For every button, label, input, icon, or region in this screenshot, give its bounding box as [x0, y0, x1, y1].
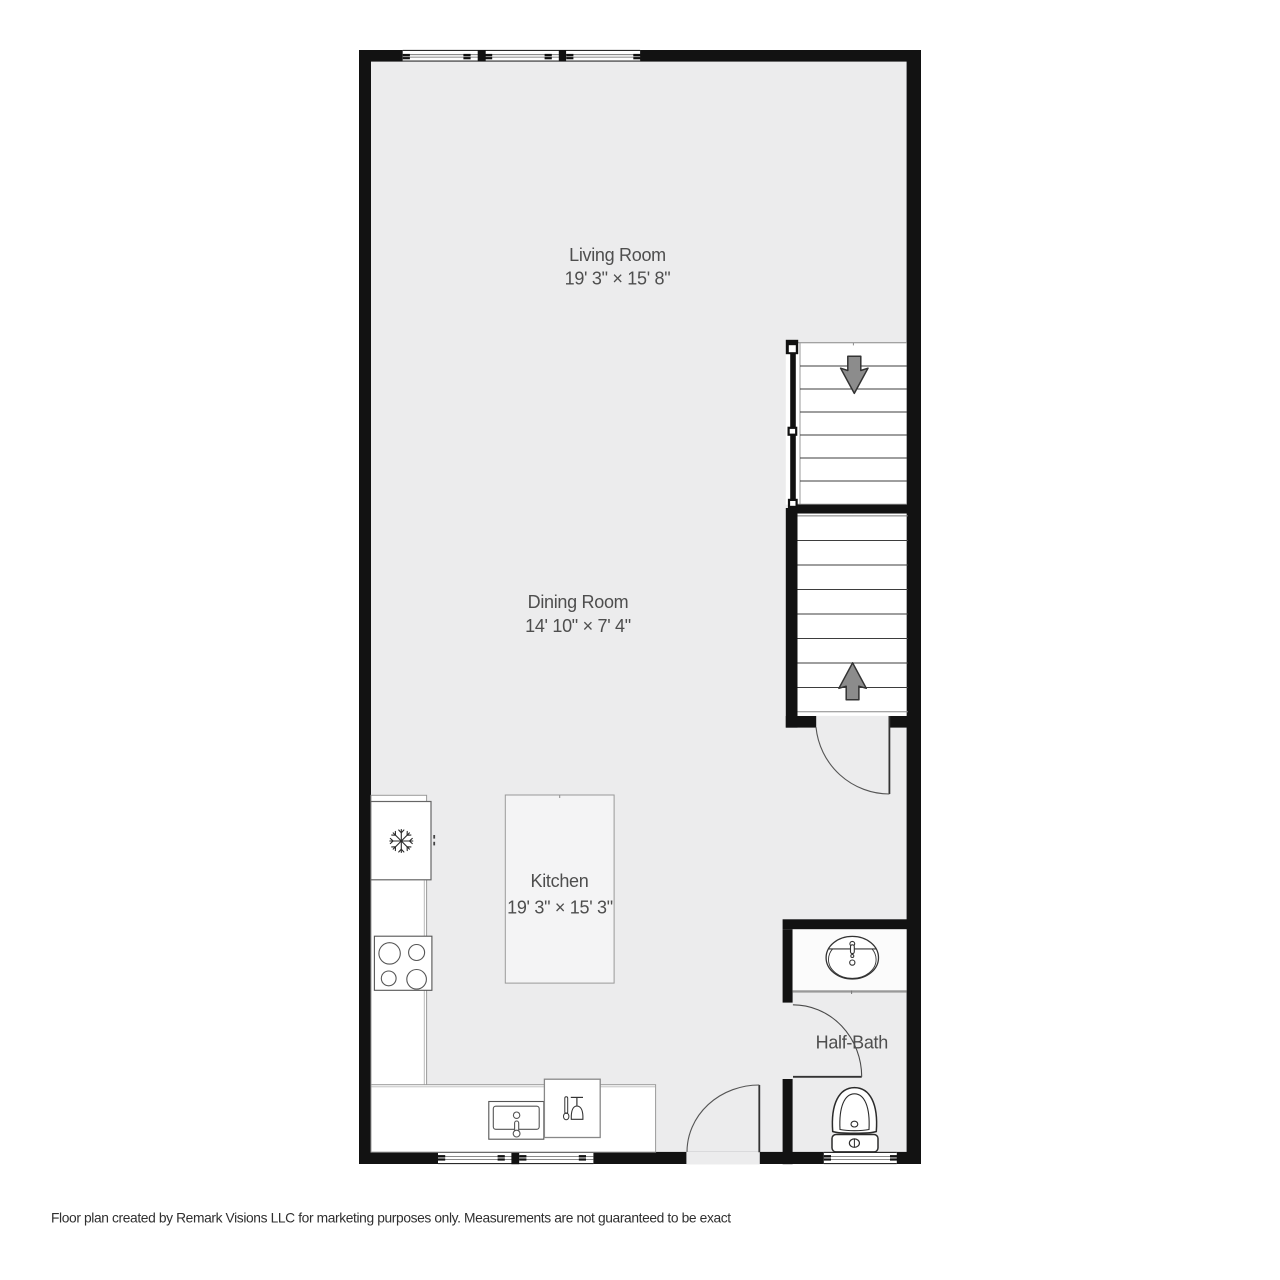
svg-text:19' 3" × 15' 3": 19' 3" × 15' 3"	[507, 898, 613, 918]
svg-text:Living Room: Living Room	[569, 245, 666, 265]
svg-text:19' 3" × 15' 8": 19' 3" × 15' 8"	[565, 269, 671, 289]
svg-text:Kitchen: Kitchen	[531, 871, 589, 891]
svg-text:Dining Room: Dining Room	[528, 592, 629, 612]
svg-text:Half-Bath: Half-Bath	[816, 1033, 888, 1053]
svg-text:Floor plan created by Remark V: Floor plan created by Remark Visions LLC…	[51, 1211, 731, 1226]
svg-text:14' 10" × 7' 4": 14' 10" × 7' 4"	[525, 616, 631, 636]
